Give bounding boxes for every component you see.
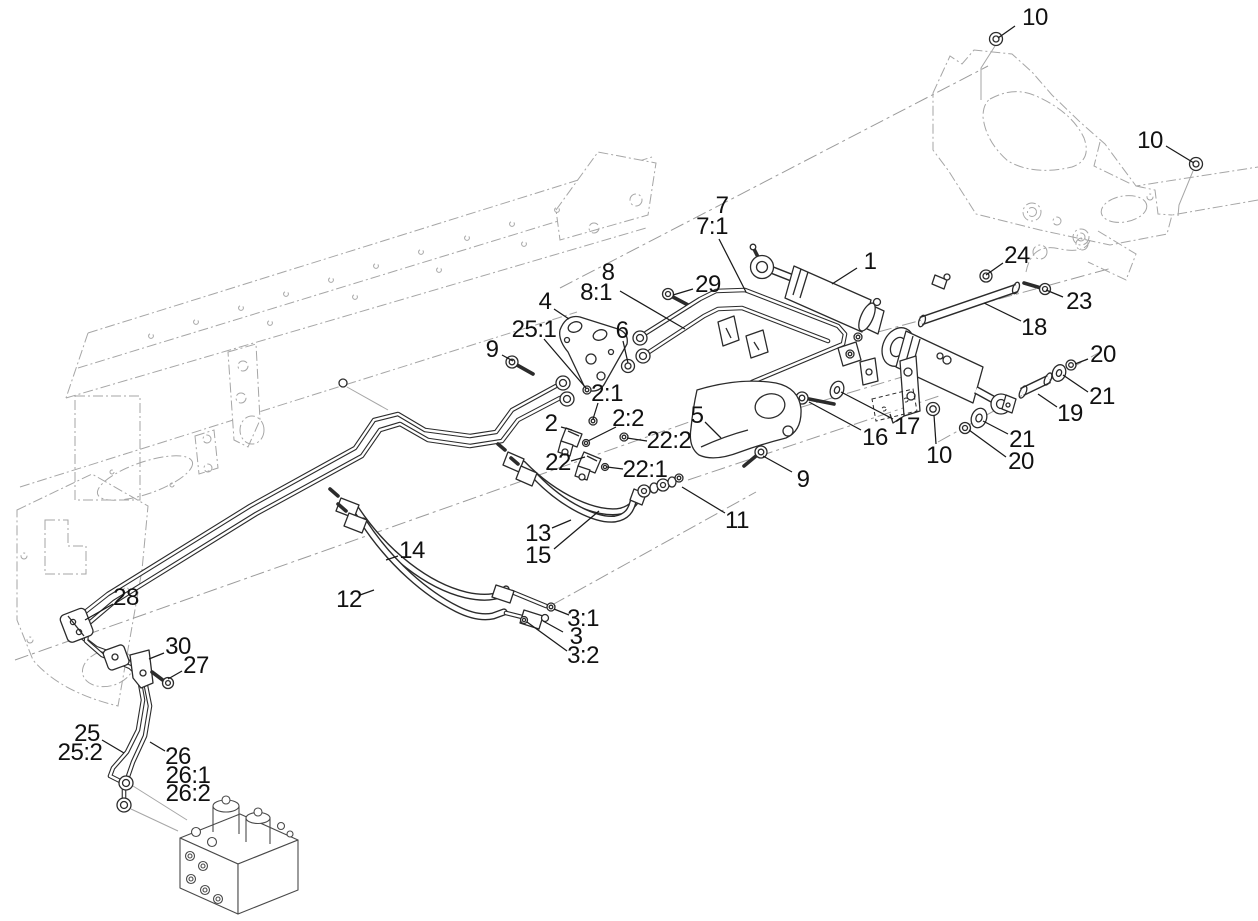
callout-18-7: 18	[1021, 316, 1047, 340]
leader-19-27	[1038, 394, 1057, 407]
clamp-28	[59, 607, 95, 644]
leader-15-33	[554, 511, 599, 549]
washer-20-outer	[1066, 360, 1076, 370]
pin-18	[917, 274, 1021, 328]
tube-clips	[718, 316, 861, 366]
bolt-27	[152, 672, 174, 689]
callout-23-6: 23	[1066, 290, 1092, 314]
callout-27-41: 27	[183, 654, 209, 678]
washer-21-inner	[969, 406, 990, 430]
leader-21-25	[983, 421, 1008, 434]
callout-6-13: 6	[616, 319, 629, 343]
bellcrank-5	[690, 381, 801, 458]
callout-17-23: 17	[894, 415, 920, 439]
callout-10-24: 10	[926, 444, 952, 468]
callout-21-29: 21	[1089, 385, 1115, 409]
callout-3-2-38: 3:2	[567, 644, 599, 668]
leader-3-2-38	[527, 622, 567, 651]
callout-14-34: 14	[399, 539, 425, 563]
leader-17-23	[841, 392, 893, 419]
leader-22-1-21	[607, 467, 623, 469]
callout-29-10: 29	[695, 273, 721, 297]
leader-13-32	[552, 520, 571, 528]
washer-17	[828, 379, 846, 400]
valve-block	[131, 786, 298, 914]
callout-11-31: 11	[725, 509, 749, 533]
leader-1-4	[832, 268, 857, 284]
nut-10-mid	[927, 403, 940, 416]
callout-25-1-12: 25:1	[512, 318, 557, 342]
leader-25-42	[102, 740, 124, 753]
nut-10-top	[981, 33, 1003, 101]
bolt-23	[1024, 283, 1051, 295]
callout-22-2-18: 22:2	[647, 429, 692, 453]
bolt-16	[796, 392, 834, 404]
callout-2-1-15: 2:1	[591, 382, 623, 406]
leader-20-26	[969, 430, 1006, 457]
oring-25-1	[583, 386, 591, 394]
callout-16-22: 16	[862, 426, 888, 450]
leader-16-22	[809, 402, 861, 430]
callout-2-16: 2	[545, 412, 558, 436]
callout-12-35: 12	[336, 588, 362, 612]
callout-15-33: 15	[525, 544, 551, 568]
lift-cylinder	[876, 323, 1016, 414]
callout-20-26: 20	[1008, 450, 1034, 474]
callout-25-2-43: 25:2	[58, 741, 103, 765]
leader-11-31	[682, 487, 725, 513]
callout-10-1: 10	[1137, 129, 1163, 153]
leader-7-1-3	[719, 239, 746, 292]
callout-22-20: 22	[545, 451, 571, 475]
leader-27-41	[168, 671, 182, 679]
callout-24-5: 24	[1004, 244, 1030, 268]
callout-26-2-46: 26:2	[166, 782, 211, 806]
callout-1-4: 1	[864, 250, 877, 274]
callout-2-2-17: 2:2	[612, 407, 644, 431]
leader-29-10	[673, 289, 693, 295]
washer-20-inner	[960, 423, 971, 434]
callout-28-39: 28	[113, 586, 139, 610]
leader-3-37	[543, 621, 563, 632]
leader-21-29	[1063, 375, 1088, 392]
leader-24-5	[986, 263, 1003, 275]
leader-18-7	[984, 303, 1021, 321]
leader-10-24	[934, 415, 936, 444]
callout-5-19: 5	[691, 404, 704, 428]
nut-10-right	[1178, 158, 1203, 217]
leader-20-28	[1075, 359, 1088, 364]
elbow-22	[575, 452, 601, 480]
clamp-stud-bolt	[339, 379, 388, 410]
callout-9-30: 9	[797, 468, 810, 492]
leader-9-30	[763, 456, 792, 472]
frame-right-tower	[933, 50, 1258, 280]
callout-22-1-21: 22:1	[623, 458, 668, 482]
callout-10-0: 10	[1022, 6, 1048, 30]
leader-10-1	[1166, 146, 1194, 163]
callout-20-28: 20	[1090, 343, 1116, 367]
parts-diagram-page: 101077:1124231888:129425:1692:122:222:25…	[0, 0, 1258, 921]
callout-8-1-9: 8:1	[580, 281, 612, 305]
callout-4-11: 4	[539, 290, 552, 314]
leader-26-44	[150, 742, 165, 751]
pin-19	[1018, 372, 1054, 399]
callout-9-14: 9	[486, 338, 499, 362]
washer-21-outer	[1050, 363, 1068, 383]
leader-10-0	[998, 26, 1015, 38]
callout-7-1-3: 7:1	[696, 215, 728, 239]
leader-30-40	[149, 653, 164, 659]
callout-19-27: 19	[1057, 402, 1083, 426]
